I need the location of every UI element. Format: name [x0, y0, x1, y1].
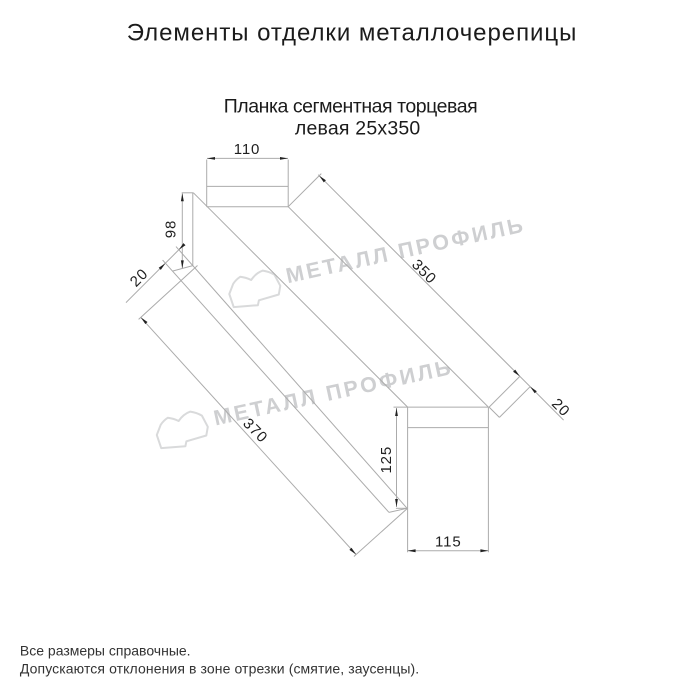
- svg-text:98: 98: [163, 220, 180, 239]
- svg-text:Элементы отделки металлочерепи: Элементы отделки металлочерепицы: [127, 19, 578, 46]
- svg-text:МЕТАЛЛ ПРОФИЛЬ: МЕТАЛЛ ПРОФИЛЬ: [284, 213, 528, 289]
- svg-text:Все размеры справочные.: Все размеры справочные.: [20, 642, 191, 658]
- svg-text:115: 115: [435, 534, 462, 551]
- svg-text:Планка сегментная торцевая: Планка сегментная торцевая: [224, 95, 478, 117]
- svg-text:20: 20: [127, 265, 152, 290]
- svg-text:Допускаются отклонения в зоне: Допускаются отклонения в зоне отрезки (с…: [20, 661, 419, 677]
- svg-text:125: 125: [378, 446, 395, 474]
- svg-text:110: 110: [234, 141, 261, 158]
- svg-text:20: 20: [548, 395, 573, 420]
- svg-text:левая 25х350: левая 25х350: [295, 118, 421, 140]
